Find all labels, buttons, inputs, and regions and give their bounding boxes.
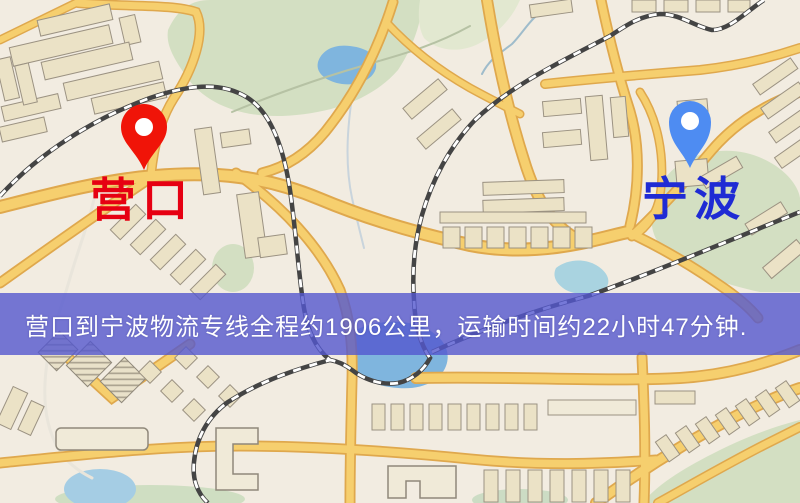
origin-city-label: 营口 [90, 177, 194, 223]
map-canvas [0, 0, 800, 503]
route-info-banner: 营口到宁波物流专线全程约1906公里，运输时间约22小时47分钟. [0, 293, 800, 355]
route-info-text: 营口到宁波物流专线全程约1906公里，运输时间约22小时47分钟. [0, 307, 747, 342]
map-screenshot: 营口 宁波 营口到宁波物流专线全程约1906公里，运输时间约22小时47分钟. [0, 0, 800, 503]
destination-city-label: 宁波 [642, 176, 746, 222]
